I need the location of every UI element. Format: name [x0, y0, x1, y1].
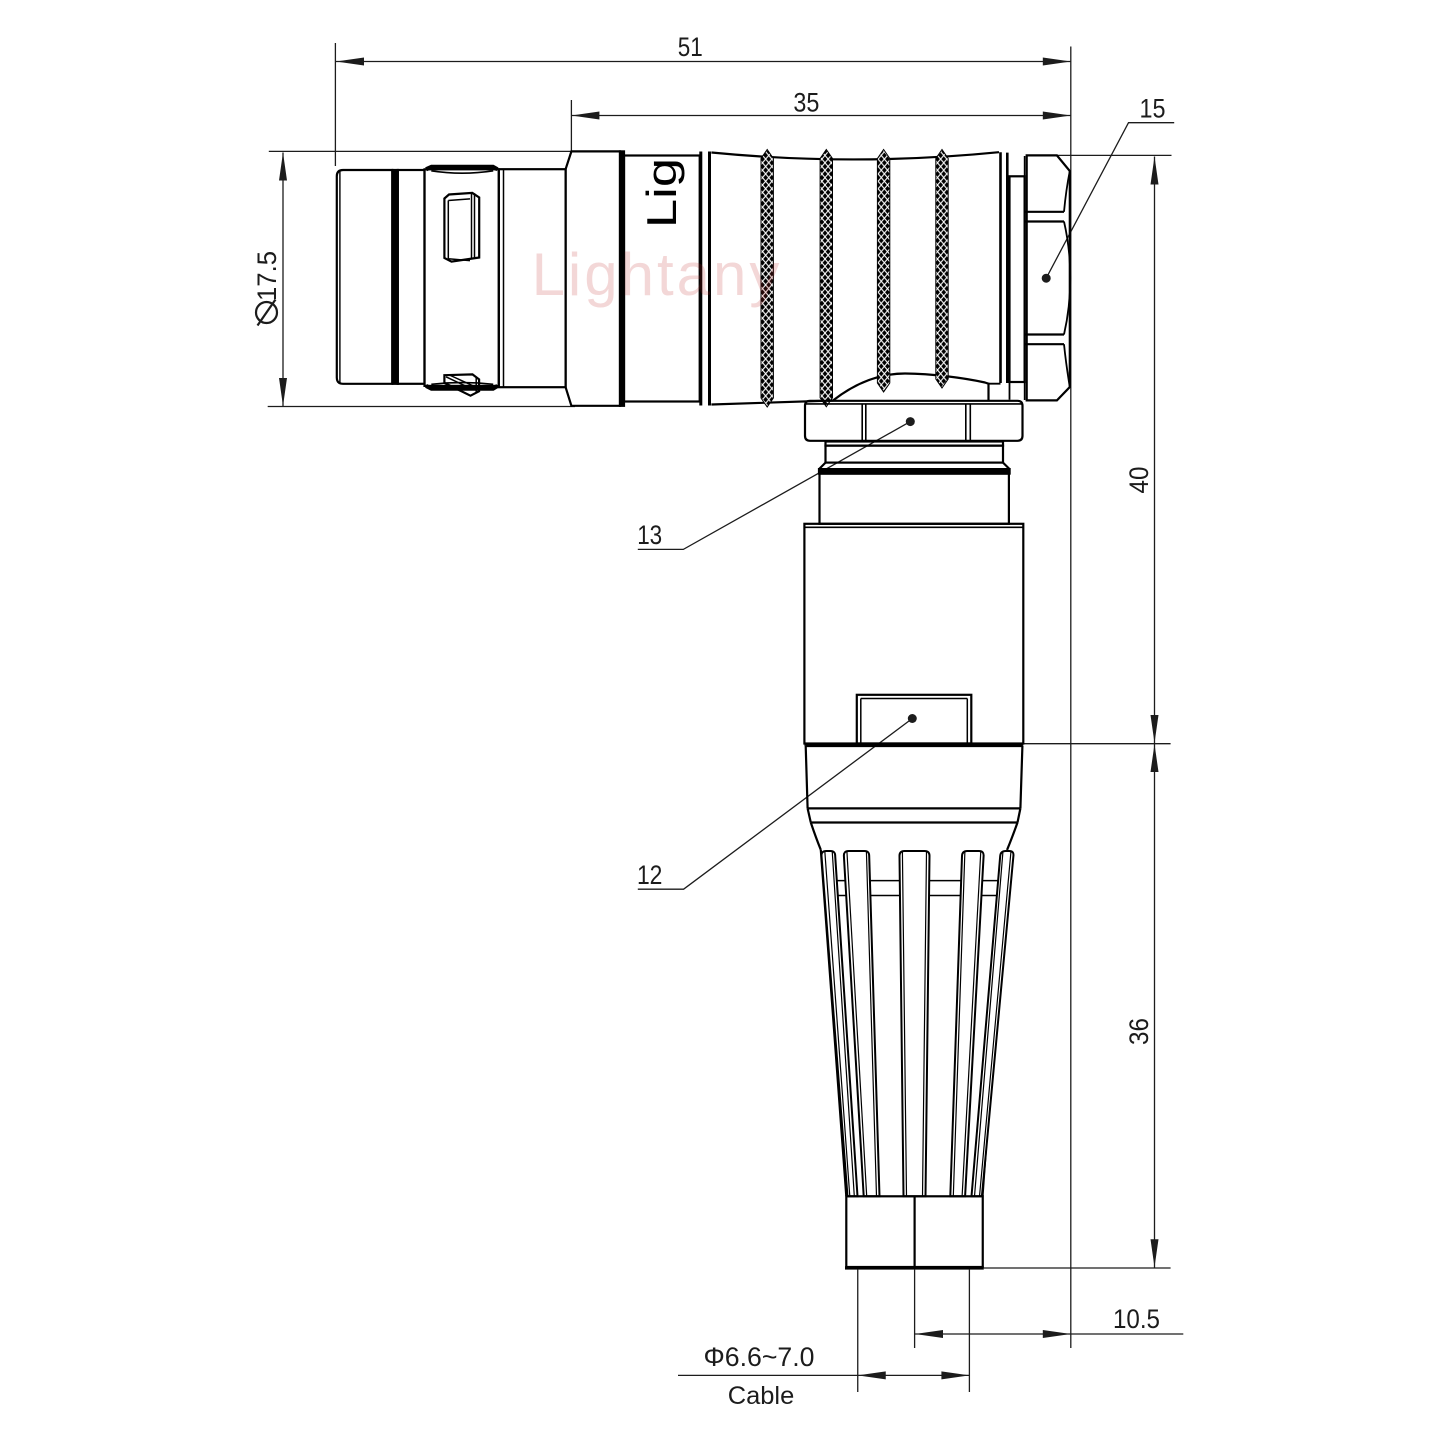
svg-text:35: 35: [793, 87, 819, 117]
svg-text:13: 13: [637, 520, 662, 550]
svg-text:36: 36: [1124, 1018, 1154, 1045]
svg-text:40: 40: [1124, 467, 1154, 494]
svg-text:Lig: Lig: [638, 158, 685, 228]
svg-text:Cable: Cable: [728, 1382, 795, 1410]
svg-text:17.5: 17.5: [252, 251, 282, 301]
svg-text:Lightany: Lightany: [532, 241, 783, 308]
svg-text:15: 15: [1140, 93, 1166, 123]
svg-text:51: 51: [678, 32, 703, 62]
svg-text:Φ6.6~7.0: Φ6.6~7.0: [704, 1342, 815, 1372]
svg-text:12: 12: [637, 860, 663, 890]
svg-text:10.5: 10.5: [1113, 1304, 1160, 1334]
